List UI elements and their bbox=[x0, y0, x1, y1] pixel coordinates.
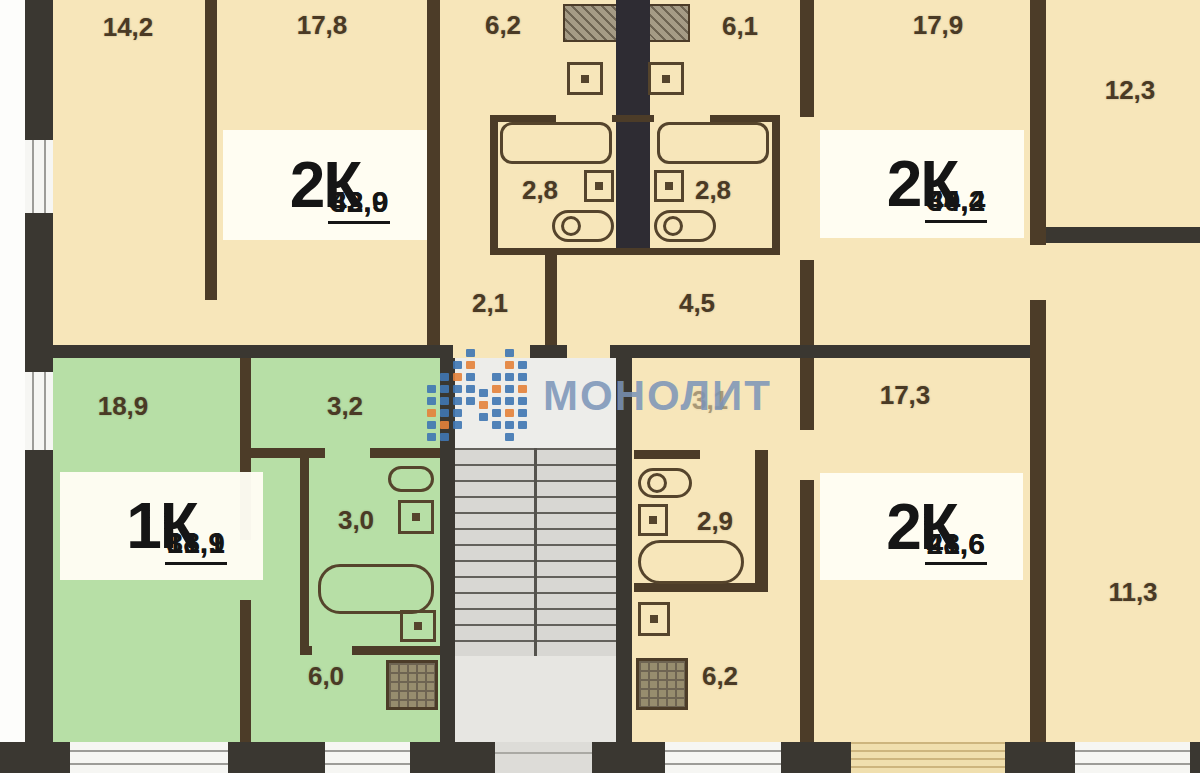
wall bbox=[800, 0, 814, 117]
room-area-label: 2,8 bbox=[500, 174, 580, 206]
window bbox=[1075, 742, 1190, 773]
wall bbox=[1046, 227, 1200, 243]
sink bbox=[648, 62, 684, 95]
sink bbox=[638, 602, 670, 636]
wall bbox=[530, 345, 567, 358]
room-area-label: 3,2 bbox=[305, 390, 385, 422]
apartment-label-bottom-left: 1К 31,1 18,9 bbox=[60, 472, 263, 580]
room-area-label: 14,2 bbox=[88, 11, 168, 43]
utility-shaft bbox=[616, 0, 650, 255]
room-area-label: 17,8 bbox=[282, 9, 362, 41]
sink bbox=[398, 500, 434, 534]
room-area-label: 2,8 bbox=[673, 174, 753, 206]
wall bbox=[300, 646, 312, 655]
wall bbox=[1030, 0, 1046, 245]
toilet bbox=[654, 210, 716, 242]
bottom-wall-segment bbox=[781, 742, 851, 773]
sink bbox=[638, 504, 668, 536]
wall bbox=[490, 115, 498, 255]
apartment-living-area: 30,2 bbox=[925, 184, 987, 219]
wall bbox=[300, 458, 309, 654]
room-area-label: 2,9 bbox=[675, 505, 755, 537]
wall bbox=[240, 600, 251, 742]
sink bbox=[400, 610, 436, 642]
bathtub bbox=[318, 564, 434, 614]
wall bbox=[352, 646, 440, 655]
bathtub bbox=[500, 122, 612, 164]
stove bbox=[386, 660, 438, 710]
wall bbox=[610, 345, 1030, 358]
bathtub bbox=[638, 540, 744, 584]
room-area-label: 4,5 bbox=[657, 287, 737, 319]
stair-divider bbox=[534, 448, 537, 656]
room-area-label: 3,0 bbox=[316, 504, 396, 536]
window bbox=[70, 742, 228, 773]
bottom-wall-segment bbox=[410, 742, 495, 773]
apartment-label-top-right: 2К 44,4 30,2 bbox=[820, 130, 1024, 238]
wall bbox=[634, 583, 768, 592]
toilet bbox=[552, 210, 614, 242]
wall bbox=[710, 115, 780, 122]
window bbox=[25, 140, 53, 213]
sink bbox=[584, 170, 614, 202]
apartment-living-area: 18,9 bbox=[165, 526, 227, 561]
wall bbox=[1030, 300, 1046, 742]
bottom-wall-segment bbox=[592, 742, 665, 773]
floor-plan: 14,2 17,8 6,2 6,1 17,9 12,3 2,8 2,8 2,1 … bbox=[0, 0, 1200, 773]
room-area-label: 12,3 bbox=[1090, 74, 1170, 106]
bathtub bbox=[657, 122, 769, 164]
apartment-living-area: 32,0 bbox=[328, 185, 390, 220]
wall bbox=[800, 260, 814, 345]
monolit-logo-icon bbox=[425, 345, 535, 450]
wall bbox=[251, 448, 325, 458]
wall bbox=[800, 480, 814, 742]
sink bbox=[567, 62, 603, 95]
wall bbox=[612, 115, 654, 122]
apartment-label-bottom-right: 2К 41,6 28,6 bbox=[820, 473, 1023, 580]
room-area-label: 6,0 bbox=[286, 660, 366, 692]
bottom-wall-segment bbox=[0, 742, 70, 773]
bottom-wall-segment bbox=[1005, 742, 1075, 773]
room-area-label: 17,9 bbox=[898, 9, 978, 41]
window bbox=[25, 372, 53, 450]
bottom-wall-segment bbox=[228, 742, 325, 773]
wall bbox=[800, 358, 814, 430]
wall bbox=[427, 0, 440, 345]
window bbox=[665, 742, 781, 773]
apartment-living-area: 28,6 bbox=[925, 527, 987, 562]
wall bbox=[634, 450, 700, 459]
room-area-label: 11,3 bbox=[1093, 576, 1173, 608]
stair-landing-lower bbox=[455, 656, 616, 742]
wall bbox=[755, 450, 768, 592]
wall bbox=[490, 248, 780, 255]
wall bbox=[490, 115, 556, 122]
balcony-doorway bbox=[851, 742, 1005, 773]
room-area-label: 6,2 bbox=[463, 9, 543, 41]
room-area-label: 2,1 bbox=[450, 287, 530, 319]
wall bbox=[772, 115, 780, 255]
sink bbox=[388, 466, 434, 492]
room-area-label: 17,3 bbox=[865, 379, 945, 411]
window bbox=[325, 742, 410, 773]
room-area-label: 18,9 bbox=[83, 390, 163, 422]
bottom-wall-segment bbox=[1190, 742, 1200, 773]
watermark-text: МОНОЛИТ bbox=[543, 372, 772, 420]
building-entrance bbox=[495, 742, 592, 773]
wall bbox=[25, 345, 453, 358]
apartment-label-top-left: 2К 43,9 32,0 bbox=[223, 130, 427, 240]
room-area-label: 6,1 bbox=[700, 10, 780, 42]
room-area-label: 6,2 bbox=[680, 660, 760, 692]
toilet bbox=[638, 468, 692, 498]
wall bbox=[205, 0, 217, 300]
wall bbox=[545, 255, 557, 345]
